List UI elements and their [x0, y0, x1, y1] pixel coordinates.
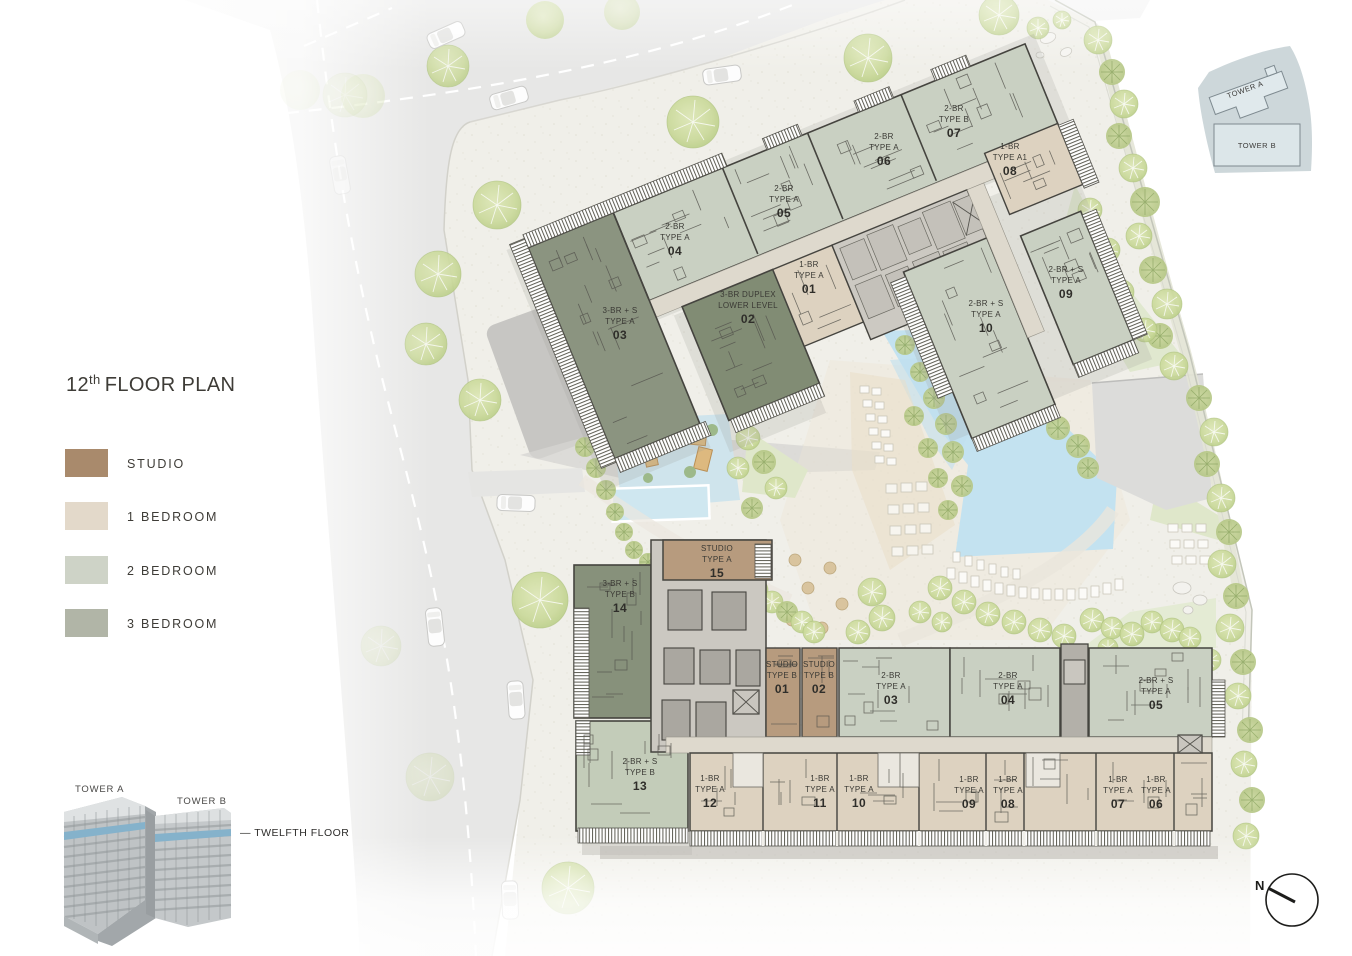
svg-text:3-BR DUPLEX: 3-BR DUPLEX: [720, 290, 776, 299]
svg-text:TYPE B: TYPE B: [939, 115, 969, 124]
svg-text:1-BR: 1-BR: [998, 775, 1017, 784]
svg-text:3 BEDROOM: 3 BEDROOM: [127, 617, 218, 631]
svg-text:09: 09: [962, 797, 976, 811]
svg-text:01: 01: [775, 682, 789, 696]
svg-text:LOWER LEVEL: LOWER LEVEL: [718, 301, 778, 310]
svg-text:TOWER B: TOWER B: [1238, 141, 1276, 150]
svg-text:02: 02: [741, 312, 755, 326]
svg-text:12: 12: [703, 796, 717, 810]
svg-text:05: 05: [1149, 698, 1163, 712]
svg-text:TYPE B: TYPE B: [605, 590, 635, 599]
svg-text:TYPE A: TYPE A: [971, 310, 1001, 319]
svg-text:15: 15: [710, 566, 724, 580]
svg-text:TYPE A: TYPE A: [954, 786, 984, 795]
svg-text:TYPE A: TYPE A: [876, 682, 906, 691]
svg-text:— TWELFTH FLOOR: — TWELFTH FLOOR: [240, 827, 349, 839]
svg-text:TYPE A: TYPE A: [1051, 276, 1081, 285]
svg-text:1-BR: 1-BR: [799, 260, 818, 269]
svg-text:11: 11: [813, 796, 827, 810]
svg-text:STUDIO: STUDIO: [766, 660, 798, 669]
svg-text:TYPE A: TYPE A: [844, 785, 874, 794]
svg-text:TYPE B: TYPE B: [804, 671, 834, 680]
svg-text:2-BR + S: 2-BR + S: [968, 299, 1003, 308]
svg-text:TYPE B: TYPE B: [625, 768, 655, 777]
svg-text:03: 03: [613, 328, 627, 342]
svg-text:TYPE A: TYPE A: [993, 682, 1023, 691]
svg-text:04: 04: [668, 244, 682, 258]
svg-text:2-BR: 2-BR: [774, 184, 793, 193]
svg-text:06: 06: [877, 154, 891, 168]
svg-text:TOWER A: TOWER A: [75, 784, 124, 795]
svg-text:10: 10: [979, 321, 993, 335]
svg-text:07: 07: [1111, 797, 1125, 811]
svg-text:2-BR: 2-BR: [665, 222, 684, 231]
svg-text:2-BR: 2-BR: [881, 671, 900, 680]
svg-text:13: 13: [633, 779, 647, 793]
svg-text:01: 01: [802, 282, 816, 296]
svg-text:1-BR: 1-BR: [1000, 142, 1019, 151]
svg-text:1-BR: 1-BR: [810, 774, 829, 783]
svg-text:1-BR: 1-BR: [1146, 775, 1165, 784]
svg-text:02: 02: [812, 682, 826, 696]
svg-text:TYPE B: TYPE B: [767, 671, 797, 680]
svg-text:07: 07: [947, 126, 961, 140]
svg-text:1-BR: 1-BR: [1108, 775, 1127, 784]
svg-text:TYPE A: TYPE A: [869, 143, 899, 152]
svg-text:STUDIO: STUDIO: [701, 544, 733, 553]
svg-text:2-BR: 2-BR: [944, 104, 963, 113]
svg-text:09: 09: [1059, 287, 1073, 301]
svg-text:05: 05: [777, 206, 791, 220]
svg-text:2-BR + S: 2-BR + S: [1048, 265, 1083, 274]
svg-text:TYPE A: TYPE A: [769, 195, 799, 204]
svg-text:TYPE A: TYPE A: [1141, 786, 1171, 795]
svg-text:2-BR + S: 2-BR + S: [622, 757, 657, 766]
svg-text:STUDIO: STUDIO: [803, 660, 835, 669]
svg-text:TYPE A: TYPE A: [660, 233, 690, 242]
svg-text:TYPE A: TYPE A: [702, 555, 732, 564]
svg-text:3-BR + S: 3-BR + S: [602, 579, 637, 588]
svg-text:3-BR + S: 3-BR + S: [602, 306, 637, 315]
svg-text:TOWER B: TOWER B: [177, 796, 227, 807]
svg-text:STUDIO: STUDIO: [127, 457, 185, 471]
svg-text:10: 10: [852, 796, 866, 810]
svg-text:1 BEDROOM: 1 BEDROOM: [127, 510, 218, 524]
svg-text:08: 08: [1001, 797, 1015, 811]
svg-text:2 BEDROOM: 2 BEDROOM: [127, 564, 218, 578]
svg-text:06: 06: [1149, 797, 1163, 811]
svg-text:TYPE A1: TYPE A1: [993, 153, 1028, 162]
svg-text:TYPE A: TYPE A: [605, 317, 635, 326]
svg-text:1-BR: 1-BR: [959, 775, 978, 784]
svg-text:TYPE A: TYPE A: [993, 786, 1023, 795]
svg-text:08: 08: [1003, 164, 1017, 178]
svg-text:TYPE A: TYPE A: [805, 785, 835, 794]
svg-text:03: 03: [884, 693, 898, 707]
svg-text:2-BR + S: 2-BR + S: [1138, 676, 1173, 685]
svg-text:2-BR: 2-BR: [874, 132, 893, 141]
svg-text:1-BR: 1-BR: [849, 774, 868, 783]
svg-text:1-BR: 1-BR: [700, 774, 719, 783]
svg-text:04: 04: [1001, 693, 1015, 707]
svg-text:2-BR: 2-BR: [998, 671, 1017, 680]
svg-text:TYPE A: TYPE A: [1141, 687, 1171, 696]
svg-text:14: 14: [613, 601, 627, 615]
svg-text:N: N: [1255, 878, 1264, 893]
svg-text:TYPE A: TYPE A: [695, 785, 725, 794]
svg-text:TYPE A: TYPE A: [794, 271, 824, 280]
svg-text:TYPE A: TYPE A: [1103, 786, 1133, 795]
